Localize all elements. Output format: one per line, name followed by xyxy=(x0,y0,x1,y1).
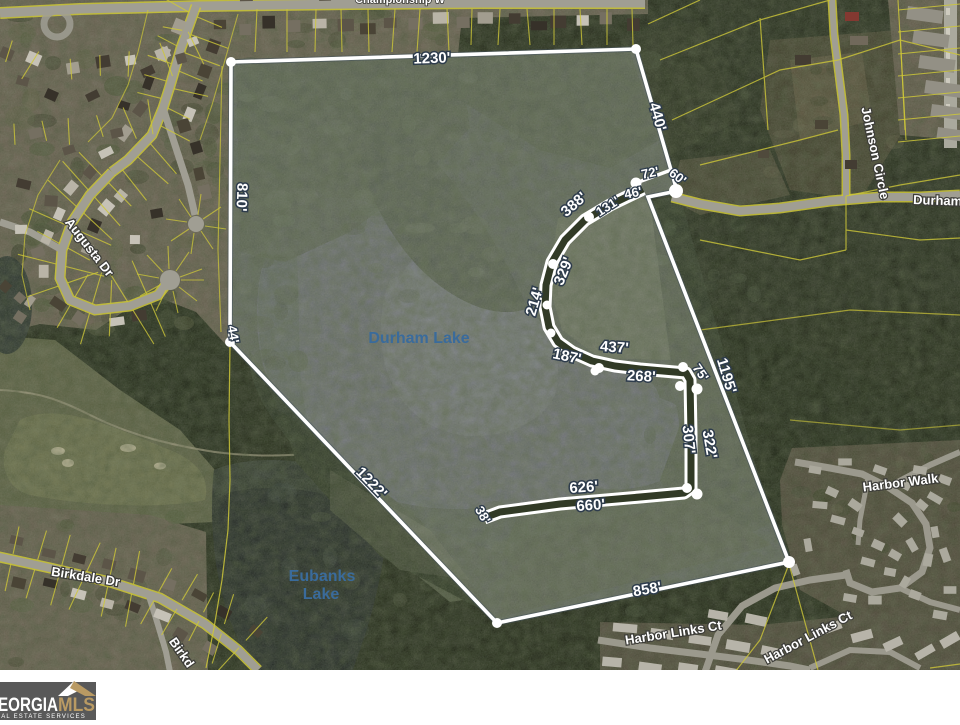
svg-text:EORGIA: EORGIA xyxy=(0,695,58,716)
svg-text:EAL ESTATE SERVICES: EAL ESTATE SERVICES xyxy=(0,714,86,720)
svg-text:307': 307' xyxy=(679,424,699,454)
svg-text:44': 44' xyxy=(225,324,243,344)
svg-text:Eubanks: Eubanks xyxy=(289,568,356,585)
svg-text:MLS: MLS xyxy=(58,695,95,716)
svg-text:437': 437' xyxy=(599,338,629,357)
svg-text:1230': 1230' xyxy=(413,49,451,67)
svg-text:Championship W: Championship W xyxy=(355,0,445,6)
svg-text:Durham R: Durham R xyxy=(913,192,960,209)
svg-text:626': 626' xyxy=(569,478,599,497)
svg-text:Lake: Lake xyxy=(303,586,340,603)
svg-text:Durham Lake: Durham Lake xyxy=(368,330,469,347)
svg-text:268': 268' xyxy=(627,367,656,385)
svg-text:810': 810' xyxy=(233,183,251,212)
svg-text:660': 660' xyxy=(576,496,606,515)
